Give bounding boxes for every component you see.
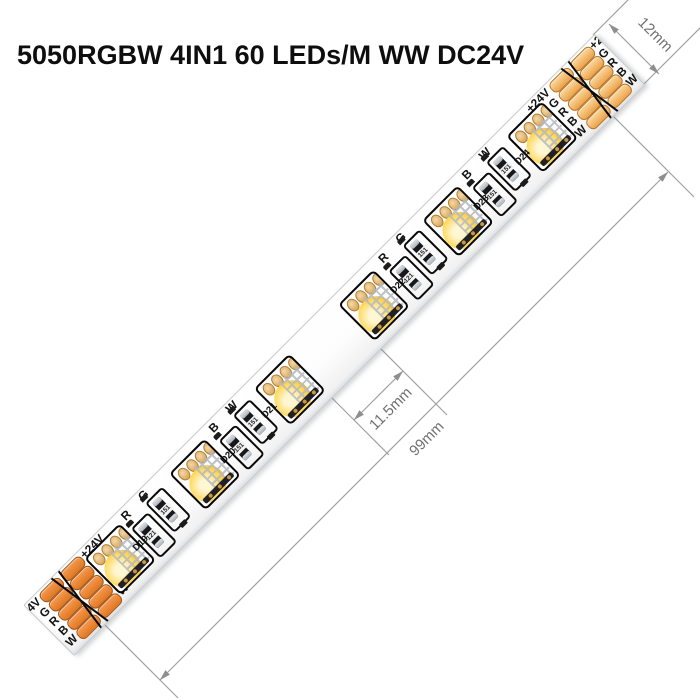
resistor-code: 151 xyxy=(415,245,431,261)
dimension-line-gap xyxy=(354,371,403,420)
resistor-code: 151 xyxy=(498,161,514,177)
length-dimension-label: 99mm xyxy=(406,418,447,459)
extension-line-length-2 xyxy=(612,115,694,197)
resistor-code: 151 xyxy=(245,414,261,430)
extension-line-length-1 xyxy=(104,624,178,698)
width-dimension-label: 12mm xyxy=(634,14,675,55)
extension-line-width-2 xyxy=(643,16,700,85)
resistor-code: 151 xyxy=(158,502,174,518)
gap-dimension-label: 11.5mm xyxy=(366,384,416,434)
product-title: 5050RGBW 4IN1 60 LEDs/M WW DC24V xyxy=(17,40,524,71)
extension-line-gap-1 xyxy=(331,397,389,455)
left-end-pad-block: +24V G R B W +24V G R B W xyxy=(25,35,595,605)
product-image: 5050RGBW 4IN1 60 LEDs/M WW DC24V 12mm 11… xyxy=(0,0,700,700)
extension-line-width-1 xyxy=(593,0,676,35)
led-strip: +24V G R B W +24V G R B W xyxy=(23,34,645,656)
extension-line-gap-2 xyxy=(380,348,447,415)
right-end-pad-block: +24V G R B W +24V G R B W xyxy=(25,35,595,605)
